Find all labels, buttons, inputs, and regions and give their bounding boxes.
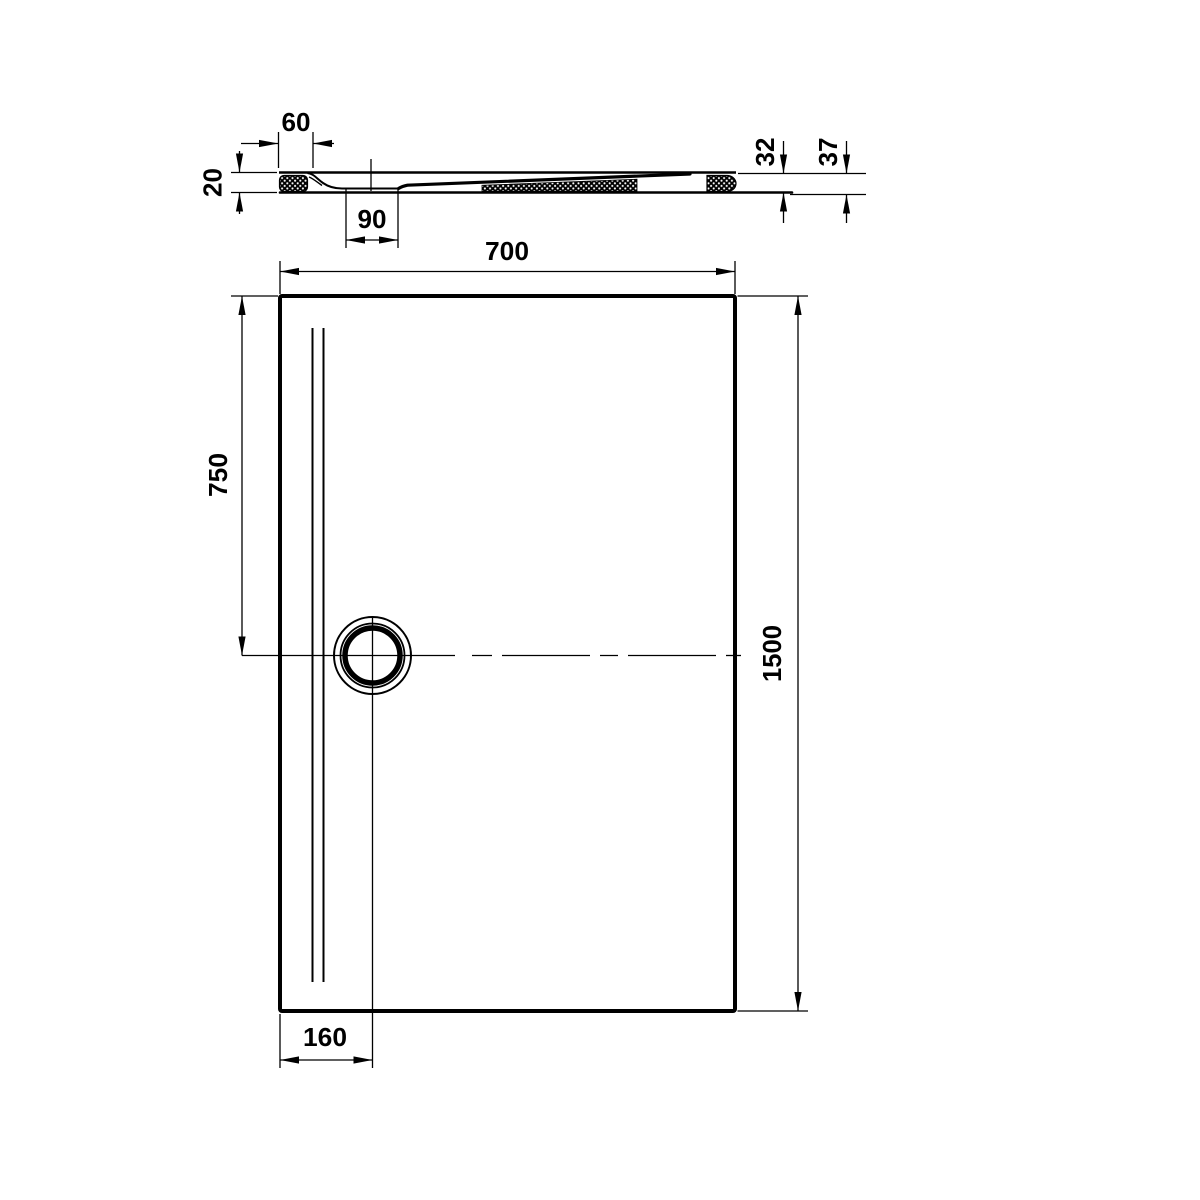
dim-20-label: 20 (200, 168, 228, 197)
dim-37-label: 37 (815, 138, 843, 167)
technical-drawing-canvas: 60 20 90 32 (0, 0, 1200, 1200)
dim-700-label: 700 (485, 238, 529, 266)
dim-60-label: 60 (282, 109, 311, 137)
page-background (0, 0, 1200, 1200)
dim-750-label: 750 (205, 453, 233, 497)
dim-160-label: 160 (303, 1024, 347, 1052)
section-left-rim-hatch (280, 176, 308, 192)
section-right-rim-hatch (707, 176, 736, 192)
dim-32-label: 32 (752, 138, 780, 167)
dim-90-label: 90 (358, 206, 387, 234)
dim-1500-label: 1500 (759, 625, 787, 682)
